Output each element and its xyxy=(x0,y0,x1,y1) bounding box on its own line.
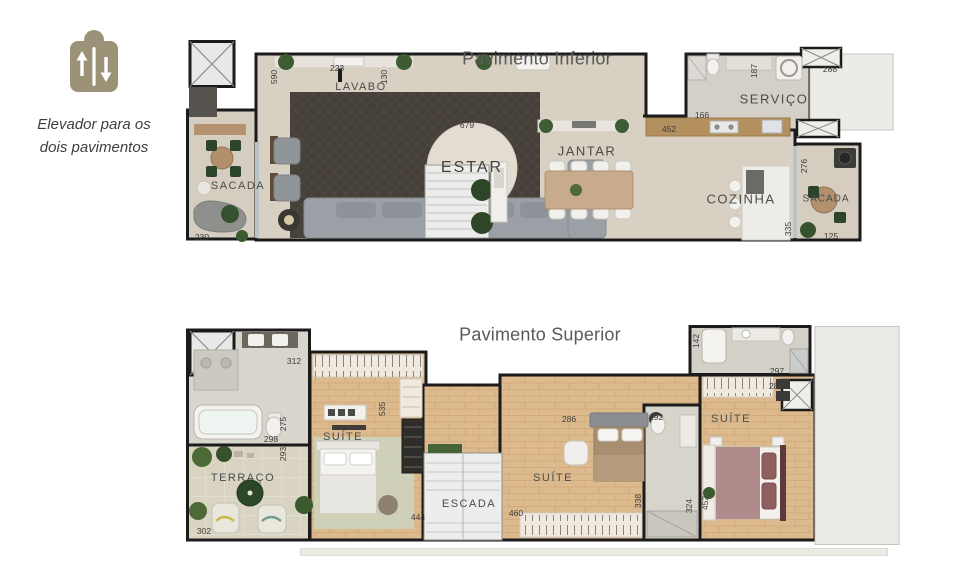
dim-324-label: 324 xyxy=(684,499,694,513)
bed-master xyxy=(316,441,380,513)
dim-444-label: 444 xyxy=(411,512,425,522)
dim-187-label: 187 xyxy=(749,64,759,78)
elevator-caption-line2: dois pavimentos xyxy=(14,136,174,159)
dim-679-label: 679 xyxy=(460,120,474,130)
window-glass xyxy=(793,146,797,238)
elevator-legend: Elevador para os dois pavimentos xyxy=(14,30,174,160)
room-label-servico: SERVIÇO xyxy=(740,92,809,107)
armchair xyxy=(564,441,588,465)
dim-297-label: 297 xyxy=(770,366,784,376)
open-terrace-area xyxy=(815,327,899,545)
dim-192-label: 192 xyxy=(649,412,663,422)
dim-130-label: 130 xyxy=(379,70,389,84)
room-label-sacada-direita: SACADA xyxy=(802,194,849,205)
room-label-jantar: JANTAR xyxy=(558,144,617,159)
dim-452-sup-label: 452 xyxy=(700,496,710,510)
dim-223-label: 223 xyxy=(330,63,344,73)
dim-604-label: 604 xyxy=(496,123,510,133)
elevator-up-down-icon xyxy=(65,30,123,103)
dim-286-label: 286 xyxy=(562,414,576,424)
dim-302-label: 302 xyxy=(197,526,211,536)
dim-460-label: 460 xyxy=(509,508,523,518)
dim-335-label: 335 xyxy=(783,222,793,236)
shower xyxy=(194,350,238,390)
room-label-terraco: TERRAÇO xyxy=(211,472,275,484)
plan-inferior-title: Pavimento Inferior xyxy=(462,49,612,70)
plan-pavimento-superior: Pavimento Superior TERRAÇO SUÍTE ESCADA … xyxy=(186,325,900,547)
bathtub xyxy=(194,405,262,439)
sideboard xyxy=(538,119,630,133)
building-edge-strip xyxy=(300,548,888,556)
dim-293-label: 293 xyxy=(278,447,288,461)
bed-suite-3 xyxy=(710,437,786,521)
dim-298-label: 298 xyxy=(264,434,278,444)
pouf xyxy=(278,209,300,231)
room-label-suite-2: SUÍTE xyxy=(533,472,573,484)
closet-suite-2 xyxy=(520,513,642,537)
dim-125-label: 125 xyxy=(824,231,838,241)
room-label-estar: ESTAR xyxy=(441,159,503,177)
dim-144-label: 144 xyxy=(367,102,381,112)
plant-icon xyxy=(295,496,313,514)
dim-452-label: 452 xyxy=(662,124,676,134)
room-label-cozinha: COZINHA xyxy=(707,192,776,207)
dim-590-label: 590 xyxy=(269,70,279,84)
double-vanity xyxy=(242,332,298,348)
dim-166-label: 166 xyxy=(695,110,709,120)
dim-275-label: 275 xyxy=(278,417,288,431)
room-label-sacada-esquerda: SACADA xyxy=(211,180,265,192)
dim-276-label: 276 xyxy=(799,159,809,173)
stairs xyxy=(424,444,502,540)
room-label-suite-master: SUÍTE xyxy=(323,431,363,443)
dim-312-label: 312 xyxy=(287,356,301,366)
dim-282-label: 282 xyxy=(769,381,783,391)
dim-142-label: 142 xyxy=(691,334,701,348)
elevator-caption: Elevador para os dois pavimentos xyxy=(14,113,174,160)
dim-338-label: 338 xyxy=(633,494,643,508)
plan-superior-title: Pavimento Superior xyxy=(459,325,621,346)
wardrobe-tall xyxy=(402,419,424,473)
dim-288-label: 288 xyxy=(823,64,837,74)
room-label-suite-3: SUÍTE xyxy=(711,413,751,425)
room-label-escada: ESCADA xyxy=(442,498,496,510)
plan-pavimento-inferior: Pavimento Inferior SACADA LAVABO ESTAR J… xyxy=(186,40,894,246)
pouf xyxy=(378,495,398,515)
dim-535-label: 535 xyxy=(377,402,387,416)
dim-230-label: 230 xyxy=(195,232,209,242)
elevator-shaft-icon xyxy=(189,42,234,118)
floorplan-sheet: Elevador para os dois pavimentos xyxy=(0,0,959,577)
elevator-caption-line1: Elevador para os xyxy=(14,113,174,136)
